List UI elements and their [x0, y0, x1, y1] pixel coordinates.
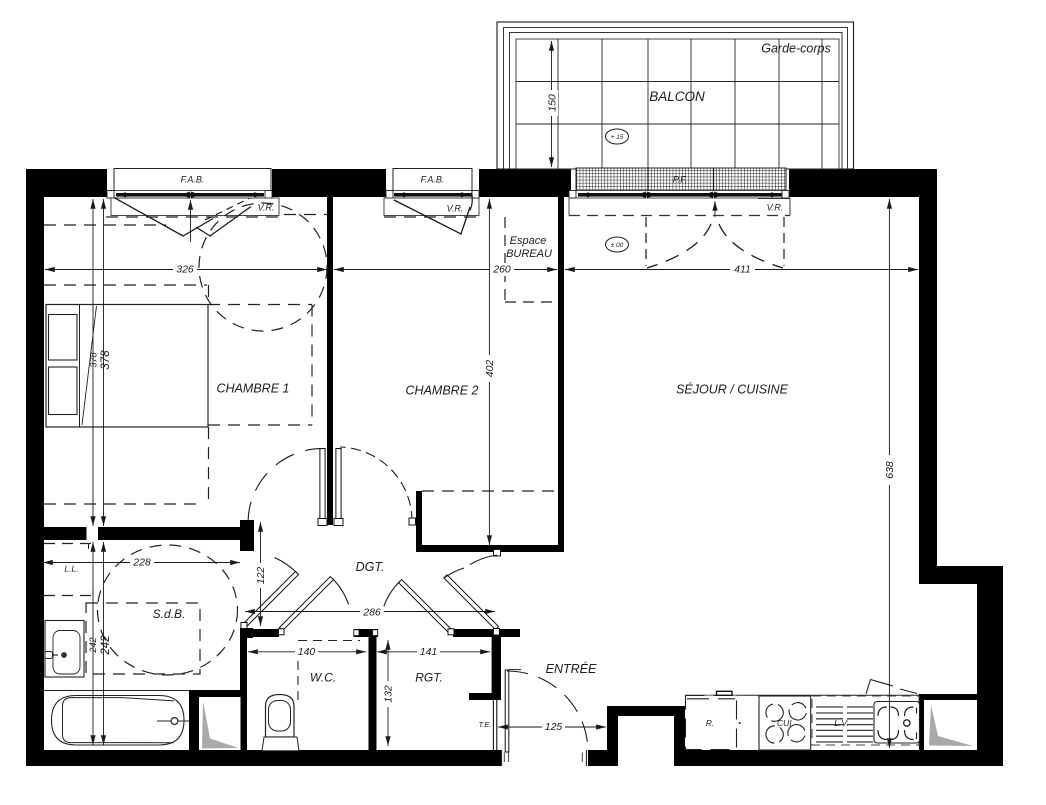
svg-text:141: 141: [420, 646, 438, 658]
svg-text:125: 125: [545, 721, 563, 733]
svg-text:286: 286: [362, 607, 381, 619]
svg-text:S.d.B.: S.d.B.: [153, 607, 186, 621]
svg-text:F.A.B.: F.A.B.: [181, 174, 205, 184]
svg-text:378: 378: [88, 352, 98, 367]
svg-text:260: 260: [492, 264, 511, 276]
svg-text:BUREAU: BUREAU: [506, 248, 552, 260]
svg-text:402: 402: [484, 360, 496, 378]
svg-text:122: 122: [255, 567, 267, 585]
svg-text:140: 140: [298, 646, 316, 658]
svg-text:+ 15: + 15: [611, 134, 624, 141]
svg-text:L.V.: L.V.: [834, 718, 849, 728]
svg-text:Garde-corps: Garde-corps: [761, 41, 830, 55]
svg-text:V.R.: V.R.: [767, 202, 784, 212]
svg-text:RGT.: RGT.: [415, 671, 443, 685]
svg-text:W.C.: W.C.: [310, 671, 336, 685]
svg-text:V.R.: V.R.: [447, 203, 464, 213]
svg-text:411: 411: [734, 264, 751, 276]
svg-text:L.L.: L.L.: [64, 563, 78, 573]
svg-text:242: 242: [88, 637, 98, 653]
svg-text:ENTRÉE: ENTRÉE: [546, 661, 597, 676]
svg-text:DGT.: DGT.: [356, 560, 385, 574]
svg-text:378: 378: [100, 350, 112, 370]
svg-text:CHAMBRE 1: CHAMBRE 1: [217, 381, 290, 395]
svg-text:638: 638: [884, 461, 896, 479]
svg-text:CHAMBRE 2: CHAMBRE 2: [406, 383, 479, 397]
svg-text:SÉJOUR / CUISINE: SÉJOUR / CUISINE: [676, 381, 788, 396]
svg-text:CUI.: CUI.: [777, 718, 794, 728]
svg-text:± 00: ± 00: [611, 242, 624, 249]
svg-text:326: 326: [176, 264, 194, 276]
svg-text:228: 228: [132, 557, 151, 569]
svg-text:150: 150: [546, 94, 558, 112]
svg-text:BALCON: BALCON: [649, 89, 705, 104]
svg-text:242: 242: [100, 635, 112, 656]
svg-text:T.E.: T.E.: [478, 720, 491, 729]
svg-text:Espace: Espace: [510, 235, 547, 247]
svg-text:P.F.: P.F.: [673, 174, 687, 184]
svg-text:F.A.B.: F.A.B.: [421, 174, 445, 184]
svg-text:132: 132: [382, 685, 394, 703]
svg-text:R.: R.: [706, 718, 715, 728]
